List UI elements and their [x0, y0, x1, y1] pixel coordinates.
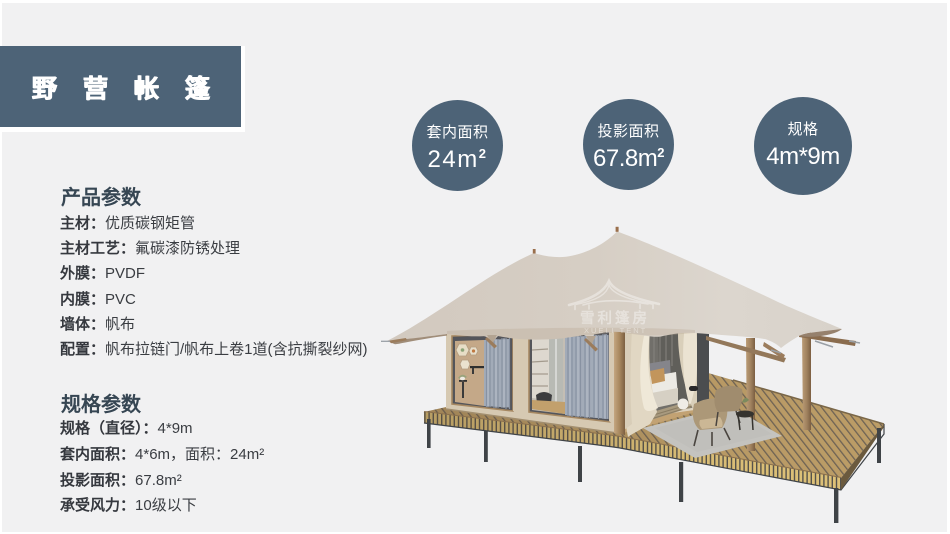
svg-text:雪利篷房: 雪利篷房	[580, 309, 650, 327]
svg-text:XUELI TENT: XUELI TENT	[584, 326, 647, 335]
